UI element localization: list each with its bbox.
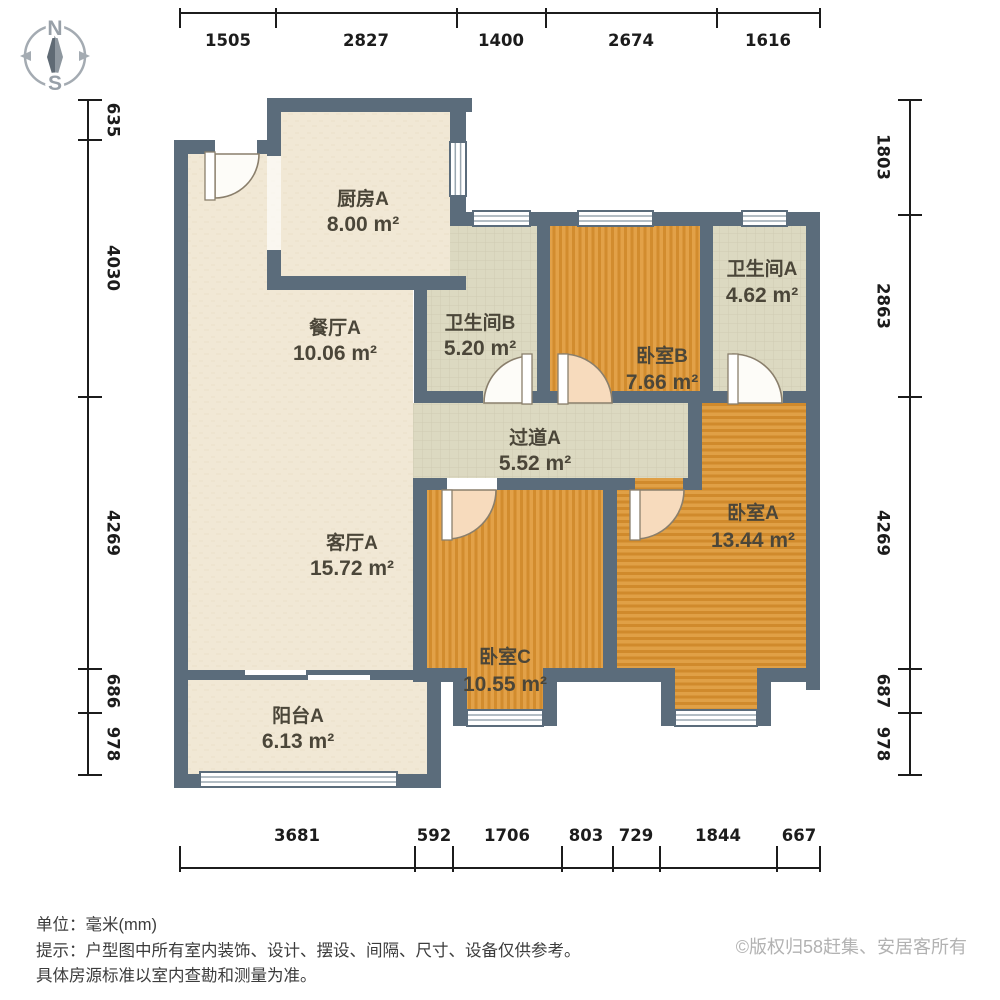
balcony-label: 阳台A [272, 704, 324, 727]
bedroom-c-bay-window [467, 710, 543, 726]
bedroom-a-bay-floor [675, 668, 757, 712]
balcony-floor [188, 680, 427, 774]
dimension-label: 3681 [274, 826, 320, 845]
bedroom-a-label: 卧室A [727, 501, 779, 524]
balcony-slider-door [245, 670, 306, 675]
dimension-label: 2827 [343, 31, 389, 50]
bedroom-b-area: 7.66 m² [626, 371, 698, 394]
dimension-label: 1706 [484, 826, 530, 845]
dimension-label: 4030 [104, 245, 123, 291]
bedroom-c-label: 卧室C [479, 645, 531, 668]
dimension-label: 4269 [104, 510, 123, 556]
dimension-label: 1505 [205, 31, 251, 50]
floorplan-canvas: N S [0, 0, 1000, 1000]
bedroom-a-area: 13.44 m² [711, 529, 795, 552]
dimension-label: 686 [104, 674, 123, 708]
bedroom-b-window [578, 211, 653, 226]
compass-south-label: S [48, 72, 62, 95]
bathroom-b-label: 卫生间B [445, 311, 516, 334]
dimension-label: 1844 [695, 826, 741, 845]
dining-label: 餐厅A [309, 316, 361, 339]
balcony-window [200, 772, 397, 787]
bedroom-a-bay-window [675, 710, 757, 726]
dimension-label: 1803 [874, 134, 893, 180]
ruler-top: 1505 2827 1400 2674 1616 [180, 8, 820, 50]
kitchen-window [450, 142, 466, 196]
floorplan-page: N S [0, 0, 1000, 1000]
ruler-left: 635 4030 4269 686 978 [78, 100, 123, 775]
ruler-right: 1803 2863 4269 687 978 [874, 100, 923, 775]
dimension-label: 667 [782, 826, 816, 845]
dimension-label: 592 [417, 826, 451, 845]
copyright-note: ©版权归58赶集、安居客所有 [736, 937, 967, 957]
dimension-label: 1616 [745, 31, 791, 50]
kitchen-area: 8.00 m² [327, 213, 399, 236]
balcony-slider-door [308, 675, 370, 680]
tip-note-line2: 具体房源标准以室内查勘和测量为准。 [36, 966, 317, 985]
bathroom-a-area: 4.62 m² [726, 284, 798, 307]
hallway-label: 过道A [509, 426, 561, 449]
compass-north-label: N [47, 17, 62, 40]
dimension-label: 2674 [608, 31, 654, 50]
dimension-label: 978 [874, 727, 893, 761]
balcony-area: 6.13 m² [262, 730, 334, 753]
kitchen-label: 厨房A [337, 187, 389, 210]
hallway-area: 5.52 m² [499, 452, 571, 475]
ruler-bottom: 3681 592 1706 803 729 1844 667 [180, 826, 820, 872]
bathroom-b-window [473, 211, 530, 226]
dimension-label: 803 [569, 826, 603, 845]
dimension-label: 1400 [478, 31, 524, 50]
bathroom-b-area: 5.20 m² [444, 337, 516, 360]
tip-note-line1: 提示：户型图中所有室内装饰、设计、摆设、间隔、尺寸、设备仅供参考。 [36, 941, 581, 960]
bedroom-c-area: 10.55 m² [463, 673, 547, 696]
bathroom-a-label: 卫生间A [727, 257, 798, 280]
dimension-label: 978 [104, 727, 123, 761]
bedroom-b-label: 卧室B [636, 344, 688, 367]
bathroom-a-window [742, 211, 787, 226]
dimension-label: 4269 [874, 510, 893, 556]
living-area: 15.72 m² [310, 557, 394, 580]
dimension-label: 687 [874, 674, 893, 708]
compass-icon: N S [20, 17, 90, 95]
dimension-label: 2863 [874, 283, 893, 329]
footer: 单位：毫米(mm) 提示：户型图中所有室内装饰、设计、摆设、间隔、尺寸、设备仅供… [36, 915, 967, 985]
dimension-label: 635 [104, 103, 123, 137]
living-label: 客厅A [326, 531, 378, 554]
unit-note: 单位：毫米(mm) [36, 915, 157, 934]
dimension-label: 729 [619, 826, 653, 845]
dining-area: 10.06 m² [293, 342, 377, 365]
